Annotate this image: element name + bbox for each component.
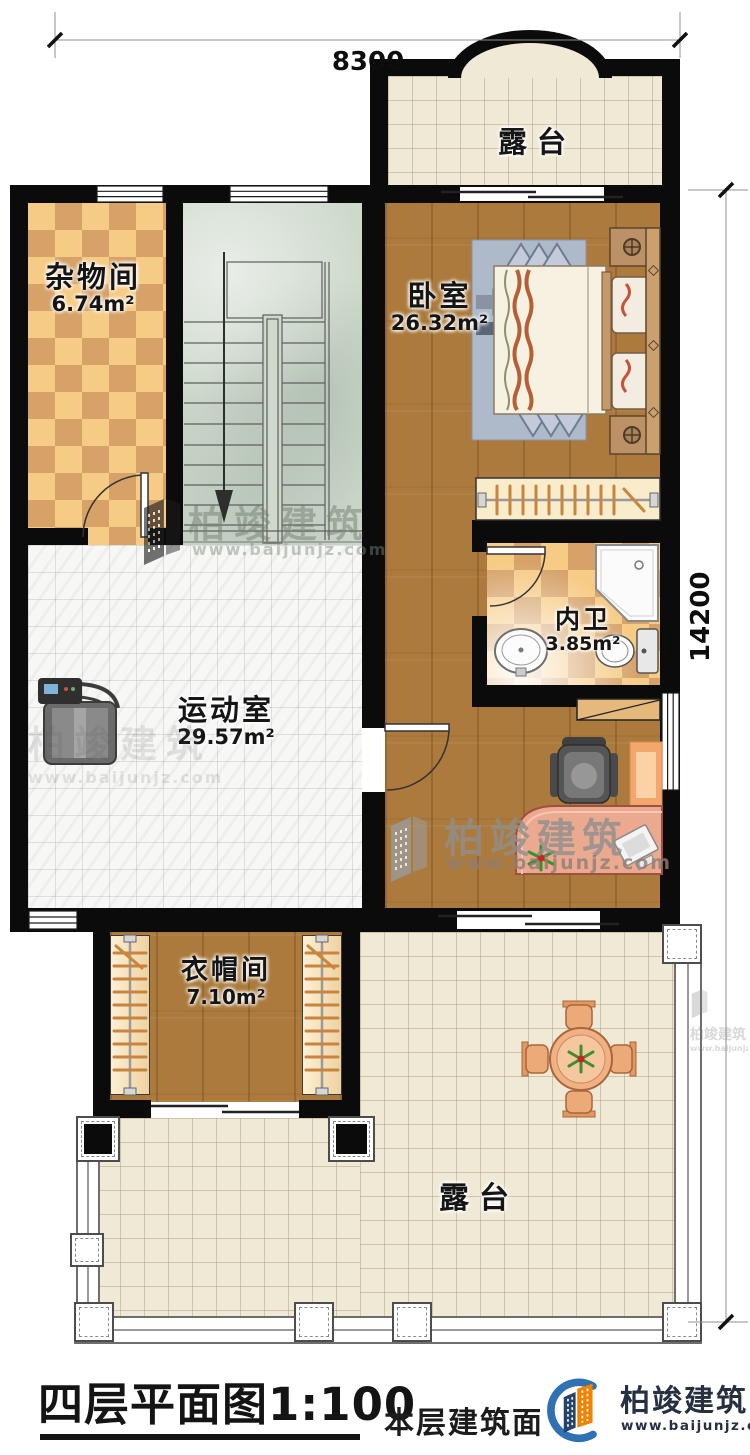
wall	[472, 543, 487, 552]
railing-post	[662, 1302, 702, 1342]
room-label-gym: 运动室 29.57m²	[146, 694, 306, 750]
railing-post	[70, 1233, 104, 1267]
wall	[472, 616, 487, 688]
dimension-top-label: 8300	[318, 47, 418, 77]
room-name: 卧室	[372, 280, 507, 312]
brand-logo: 柏竣建筑 www.baijunjz.com	[540, 1368, 750, 1454]
room-name: 杂物间	[23, 261, 163, 293]
floor-staircase	[183, 203, 362, 545]
terrace-column	[328, 1116, 375, 1162]
room-label-storage: 杂物间 6.74m²	[23, 261, 163, 317]
room-area: 26.32m²	[372, 312, 507, 336]
terrace-arch-wall	[448, 30, 612, 78]
wardrobe-right-fill	[302, 935, 342, 1095]
wall	[472, 520, 660, 543]
dimension-right-label: 14200	[686, 582, 716, 662]
floor-terrace-bottom-right	[360, 932, 676, 1318]
wall	[93, 908, 110, 1118]
room-name: 露台	[404, 1182, 554, 1216]
room-name: 内卫	[527, 606, 639, 634]
terrace-railing-bottom	[74, 1316, 702, 1344]
terrace-railing-right	[674, 926, 702, 1344]
wall	[342, 908, 360, 1118]
railing-post	[74, 1302, 114, 1342]
room-area: 6.74m²	[23, 293, 163, 317]
railing-post	[662, 924, 702, 964]
wall	[362, 185, 385, 728]
wall	[10, 185, 375, 203]
brand-name: 柏竣建筑	[620, 1376, 748, 1420]
wall	[660, 185, 680, 932]
wall	[370, 59, 388, 203]
title-underline	[40, 1434, 360, 1440]
floor-storage-room	[28, 203, 166, 545]
floor-plan-canvas: 露台 杂物间 6.74m² 卧室 26.32m² 内卫 3.85m² 运动室 2…	[0, 0, 750, 1455]
room-label-terrace-top: 露台	[462, 126, 612, 158]
wall	[148, 528, 183, 545]
bedroom-closet-fill	[476, 478, 660, 520]
railing-post	[294, 1302, 334, 1342]
room-name: 运动室	[146, 694, 306, 726]
wardrobe-left-fill	[110, 935, 150, 1095]
room-area: 3.85m²	[527, 634, 639, 655]
room-name: 露台	[462, 126, 612, 158]
railing-post	[392, 1302, 432, 1342]
plan-title: 四层平面图1:100	[38, 1368, 416, 1433]
wall	[166, 185, 183, 545]
wall	[662, 59, 680, 203]
room-name: 衣帽间	[148, 956, 304, 986]
wall	[362, 185, 680, 203]
room-label-bedroom: 卧室 26.32m²	[372, 280, 507, 336]
room-area: 29.57m²	[146, 726, 306, 750]
room-label-cloakroom: 衣帽间 7.10m²	[148, 956, 304, 1009]
brand-url: www.baijunjz.com	[621, 1418, 750, 1434]
floor-terrace-bottom-left	[96, 1118, 360, 1318]
room-label-terrace-bottom: 露台	[404, 1182, 554, 1216]
wall	[472, 685, 660, 707]
wall	[10, 528, 88, 545]
brand-logo-icon	[540, 1370, 618, 1448]
wall	[362, 792, 385, 912]
room-label-bathroom: 内卫 3.85m²	[527, 606, 639, 655]
room-area: 7.10m²	[148, 986, 304, 1008]
terrace-column	[76, 1116, 120, 1162]
